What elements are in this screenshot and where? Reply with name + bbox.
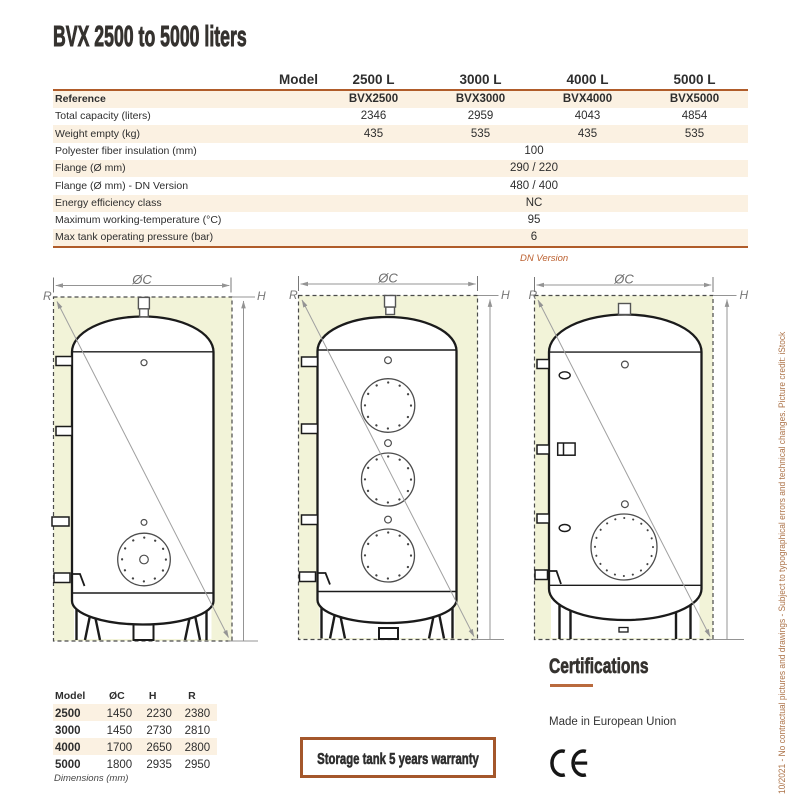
svg-text:R: R [289, 288, 298, 302]
svg-text:ØC: ØC [131, 272, 152, 287]
svg-text:ØC: ØC [377, 271, 398, 286]
svg-text:H: H [257, 289, 266, 303]
svg-text:R: R [43, 289, 52, 303]
svg-text:R: R [529, 288, 538, 302]
svg-text:H: H [501, 288, 510, 302]
svg-text:H: H [740, 288, 749, 302]
svg-text:ØC: ØC [613, 272, 634, 287]
